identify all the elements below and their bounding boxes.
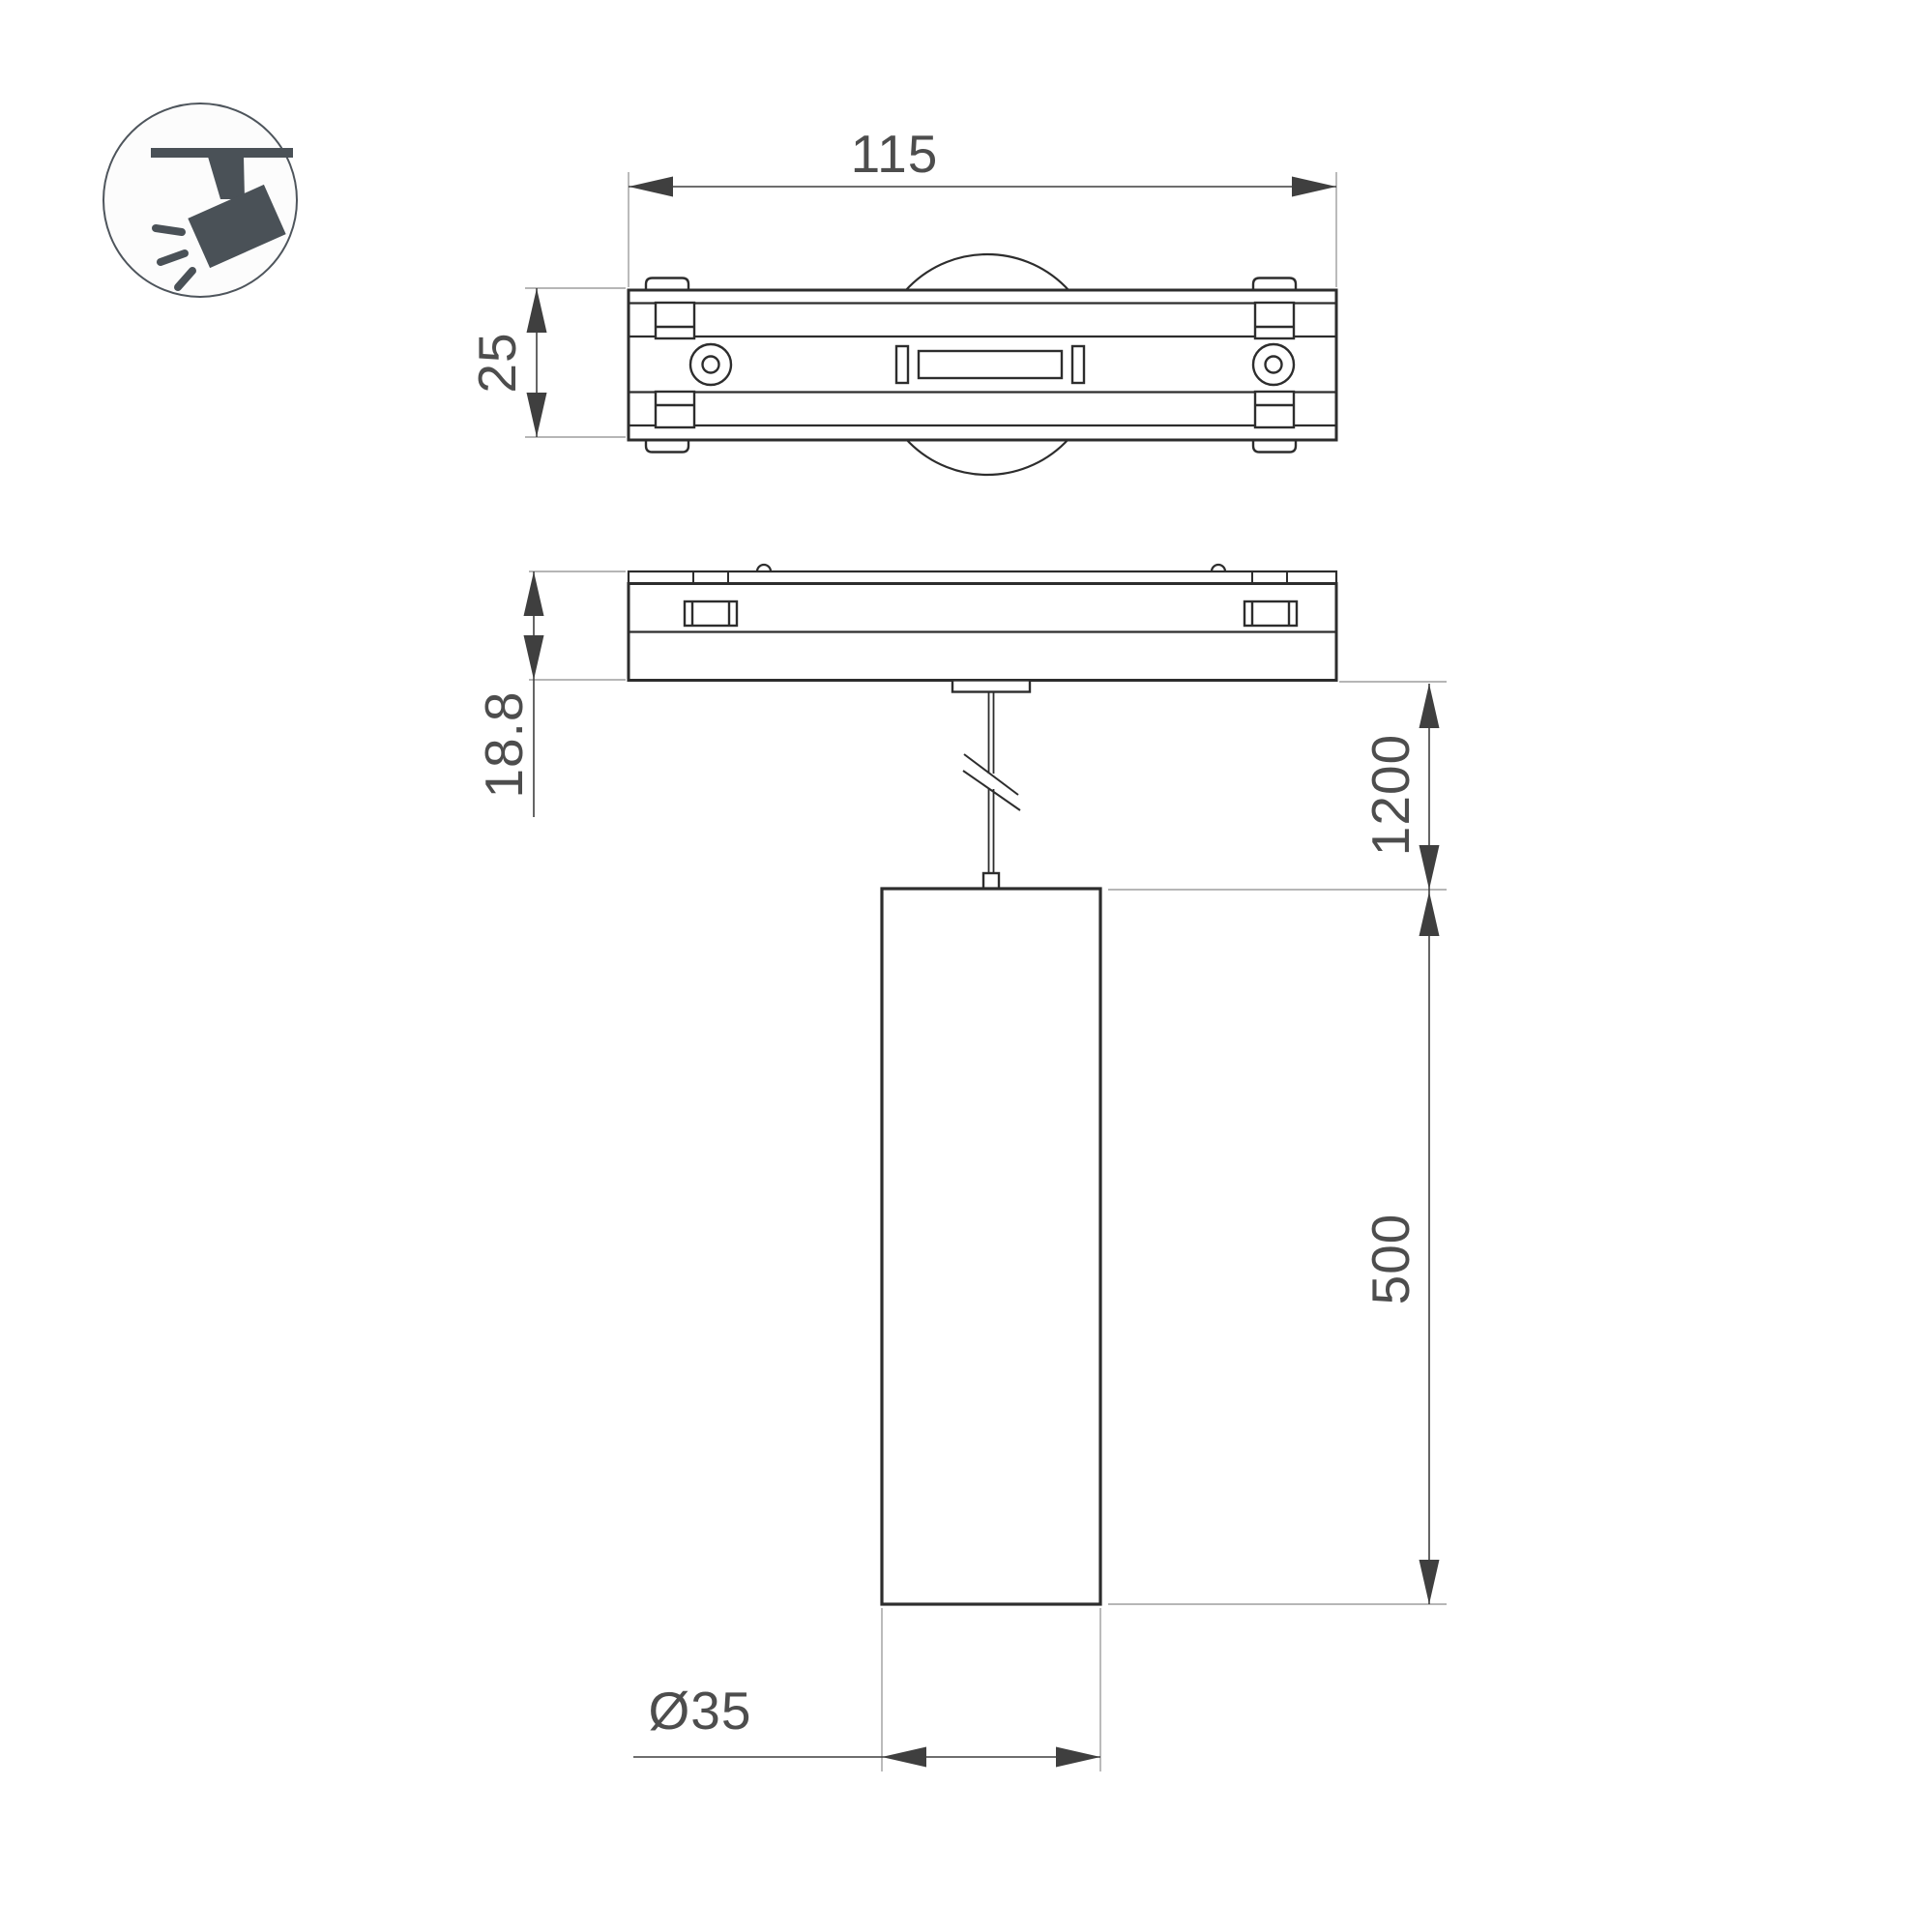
side-view-top-rail xyxy=(629,571,1336,584)
dimension-1200-label: 1200 xyxy=(1361,734,1420,856)
cable-break-gap xyxy=(981,774,1001,789)
dimension-115-label: 115 xyxy=(851,124,939,184)
dimension-diameter-label: Ø35 xyxy=(649,1681,752,1741)
pendant-lamp-body xyxy=(882,889,1100,1604)
cable-flange xyxy=(952,681,1030,692)
dimension-25-label: 25 xyxy=(467,332,527,393)
icon-track-bar xyxy=(151,148,293,158)
side-view xyxy=(629,565,1336,692)
dimension-18.8-label: 18.8 xyxy=(474,690,534,798)
cable-node xyxy=(983,873,999,889)
track-spotlight-icon xyxy=(103,103,297,297)
top-view xyxy=(629,254,1336,475)
technical-drawing-canvas: 115 25 18.8 1200 500 Ø35 xyxy=(0,0,1932,1932)
dimension-500-label: 500 xyxy=(1361,1214,1420,1305)
suspension-cable xyxy=(963,692,1020,890)
top-view-contact-slot xyxy=(896,346,1084,383)
